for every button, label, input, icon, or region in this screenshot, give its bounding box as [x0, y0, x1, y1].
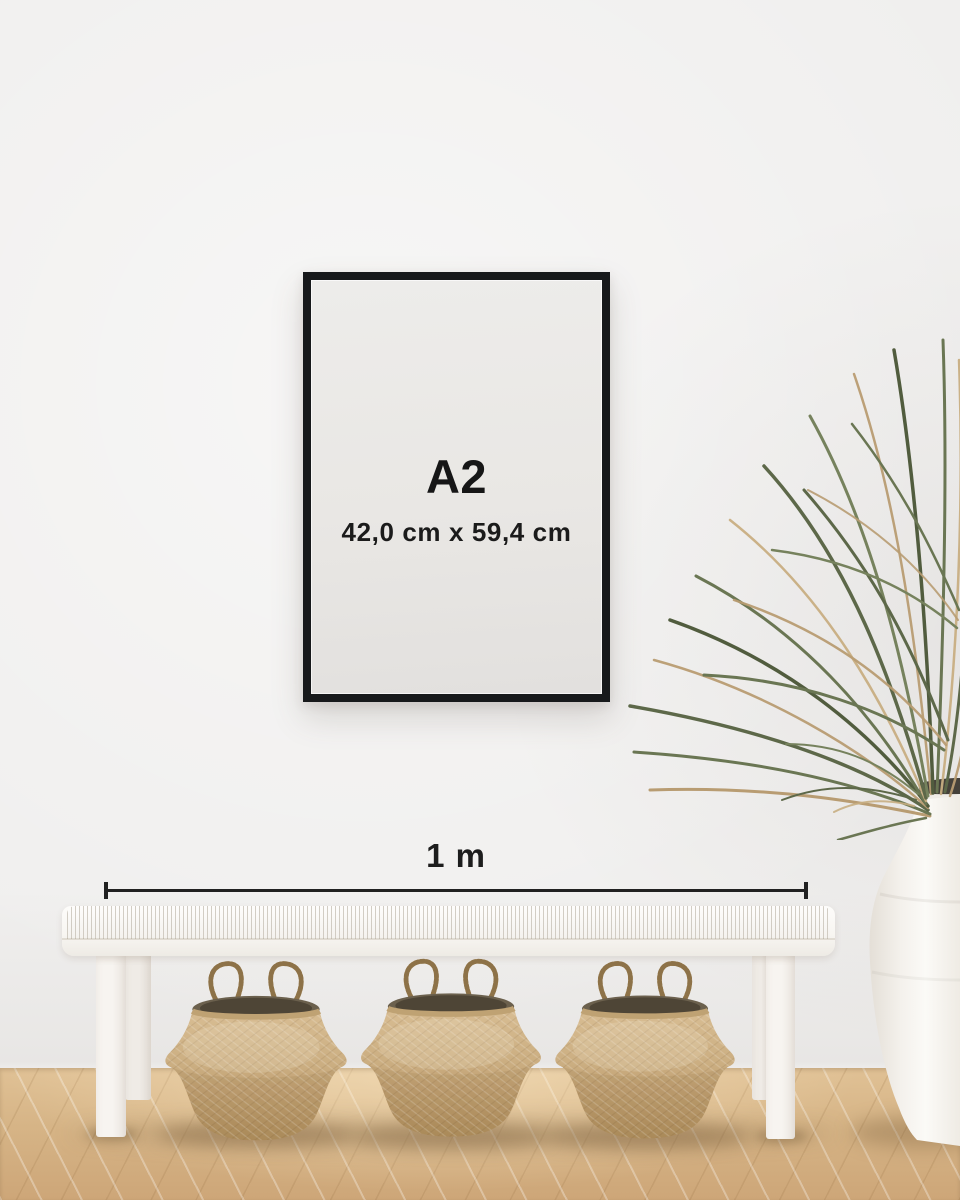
bench-woven-top	[67, 906, 830, 939]
basket-left	[156, 956, 356, 1146]
scale-label: 1 m	[104, 839, 808, 872]
poster: A2 42,0 cm x 59,4 cm	[311, 280, 602, 694]
basket-right	[543, 956, 747, 1144]
bench-leg-front-right	[766, 950, 795, 1139]
poster-dimensions-label: 42,0 cm x 59,4 cm	[342, 519, 572, 545]
ruler-endcap-right	[804, 882, 808, 899]
bench-leg-back-left	[125, 950, 151, 1100]
palm-fronds	[630, 340, 960, 840]
poster-text-block: A2 42,0 cm x 59,4 cm	[342, 453, 572, 545]
mockup-scene: A2 42,0 cm x 59,4 cm 1 m	[0, 0, 960, 1200]
scale-ruler	[104, 873, 808, 909]
ruler-line	[105, 889, 807, 892]
bench-leg-front-left	[96, 950, 126, 1137]
bench-seat	[62, 906, 835, 956]
picture-frame: A2 42,0 cm x 59,4 cm	[303, 272, 610, 702]
poster-size-label: A2	[426, 453, 487, 500]
plant-illustration	[612, 328, 960, 840]
bench-seat-edge	[62, 938, 835, 940]
basket-center	[352, 952, 550, 1144]
